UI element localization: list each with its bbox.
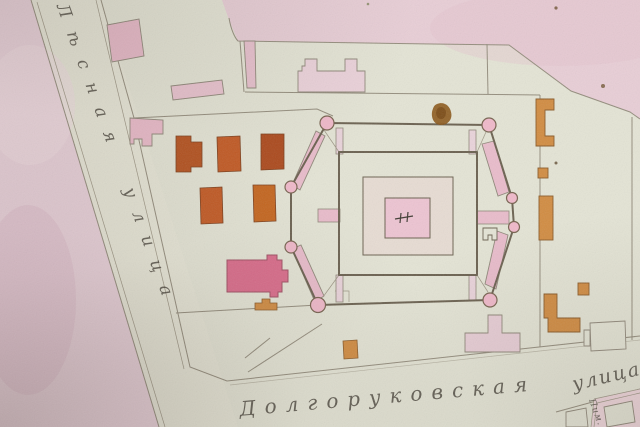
city-block-plan: Лѣсная улица Долгоруковская улица Пим. xyxy=(0,0,640,427)
historical-map-photo: Лѣсная улица Долгоруковская улица Пим. xyxy=(0,0,640,427)
paper-grain xyxy=(0,0,640,427)
